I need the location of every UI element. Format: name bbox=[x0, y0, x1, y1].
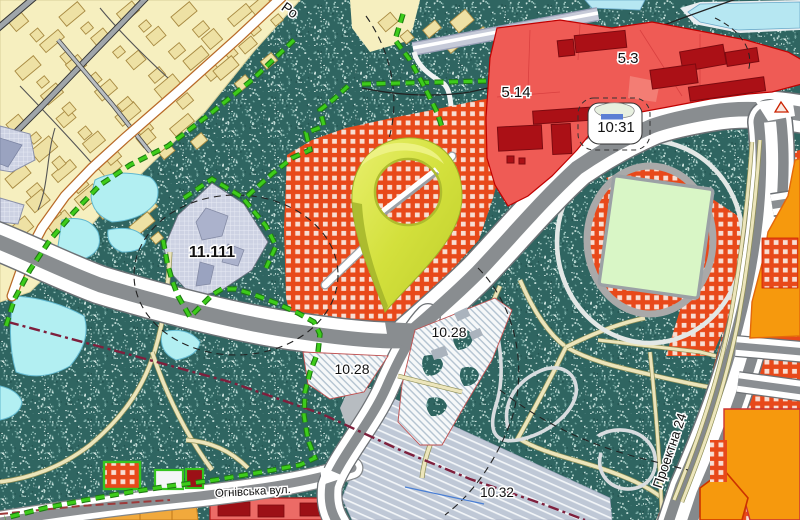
svg-text:10.28: 10.28 bbox=[334, 361, 369, 377]
svg-text:5.3: 5.3 bbox=[618, 50, 639, 67]
svg-text:5.14: 5.14 bbox=[501, 84, 530, 101]
svg-text:10.28: 10.28 bbox=[431, 324, 466, 340]
svg-text:10:31: 10:31 bbox=[597, 119, 635, 136]
svg-text:11.111: 11.111 bbox=[189, 244, 235, 261]
svg-text:10.32: 10.32 bbox=[480, 485, 514, 500]
